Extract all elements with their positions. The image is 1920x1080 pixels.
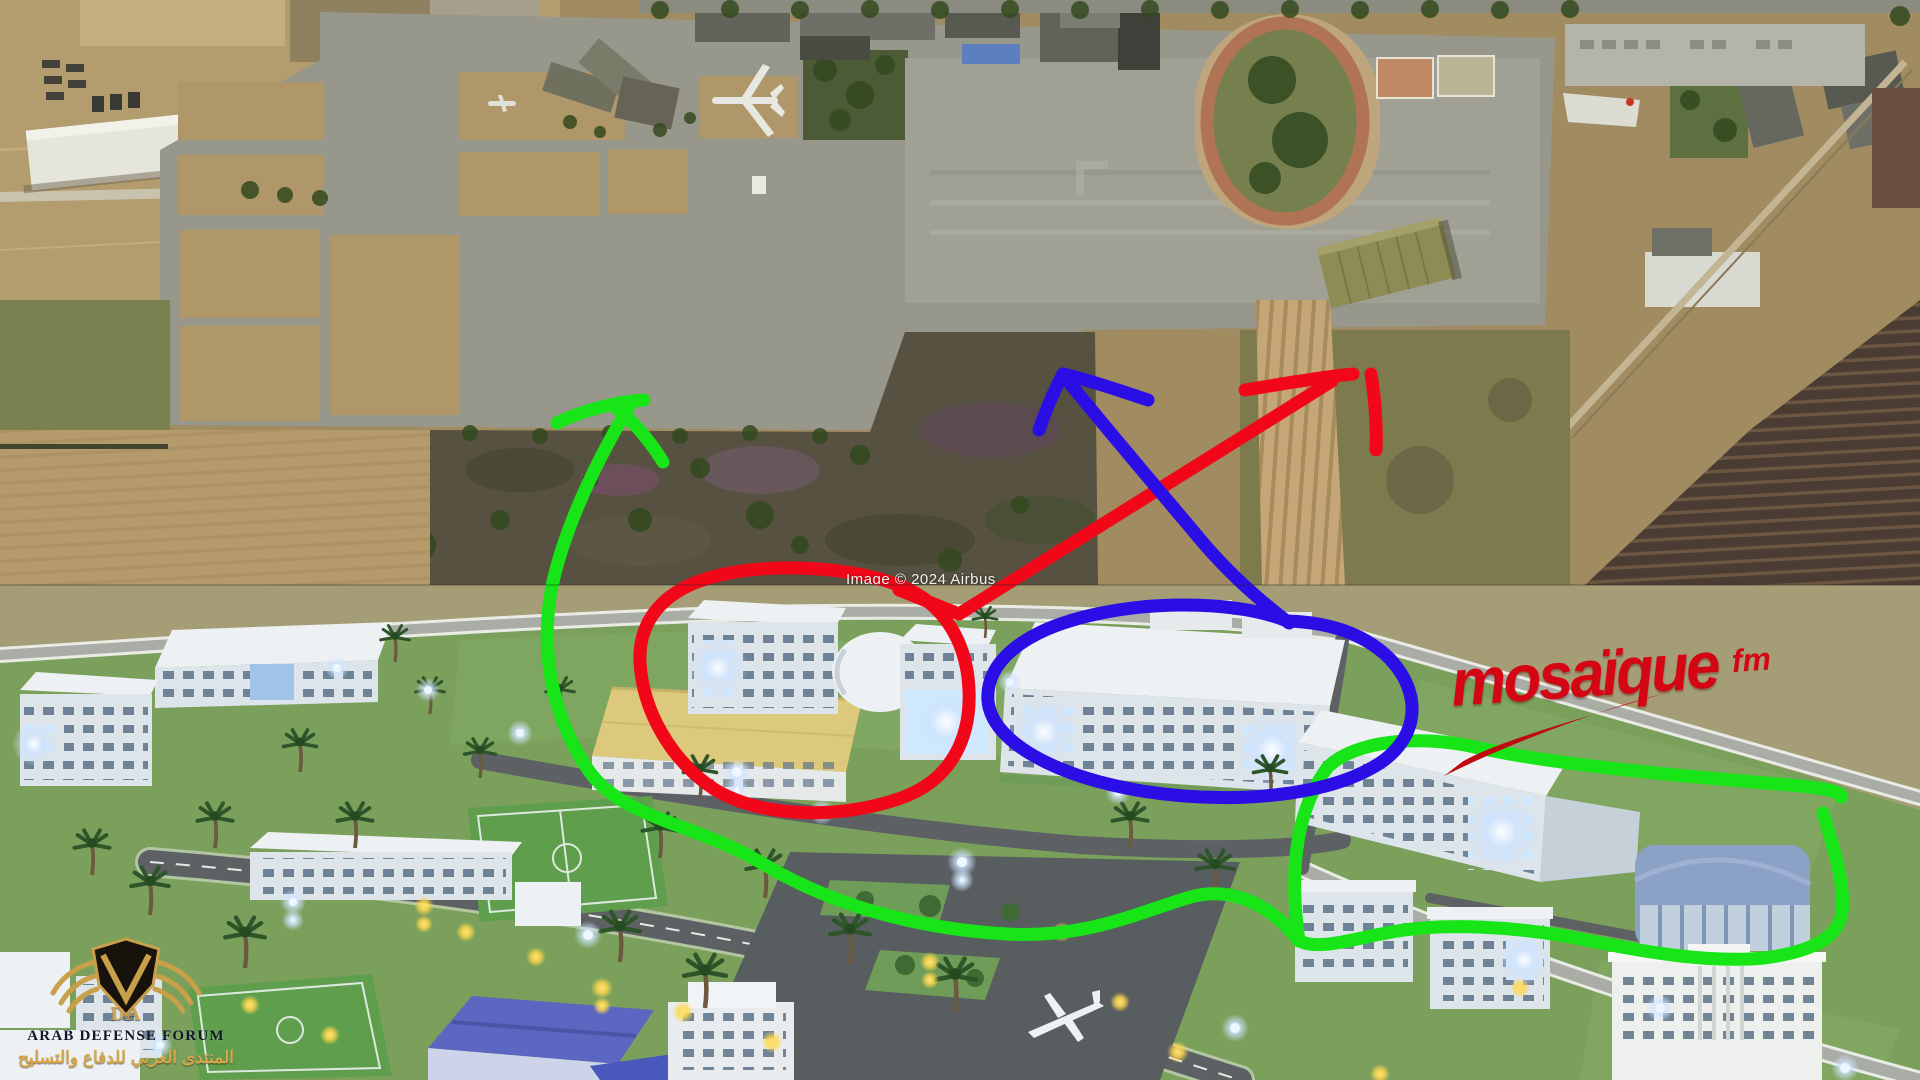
- logo-fm-suffix: fm: [1731, 640, 1773, 679]
- watermark-initials: DA: [6, 1003, 246, 1026]
- watermark-title: ARAB DEFENSE FORUM: [6, 1028, 246, 1045]
- montage-seam: [0, 584, 1920, 586]
- model-hangar-blue: [1635, 845, 1810, 951]
- annotated-satellite-model-montage: Image © 2024 Airbus mosaïquefm DA ARAB D…: [0, 0, 1920, 1080]
- arab-defense-forum-watermark: DA ARAB DEFENSE FORUM المنتدى العربي للد…: [6, 933, 246, 1068]
- satellite-view: [0, 0, 1920, 585]
- watermark-subtitle-arabic: المنتدى العربي للدفاع والتسليح: [6, 1048, 246, 1068]
- scene-graphics: [0, 0, 1920, 1080]
- imagery-copyright: Image © 2024 Airbus: [846, 571, 996, 584]
- model-building-left-a: [155, 622, 392, 708]
- satellite-parking: [1565, 24, 1865, 86]
- satellite-running-track: [1195, 14, 1380, 229]
- model-building-left-b: [12, 672, 158, 786]
